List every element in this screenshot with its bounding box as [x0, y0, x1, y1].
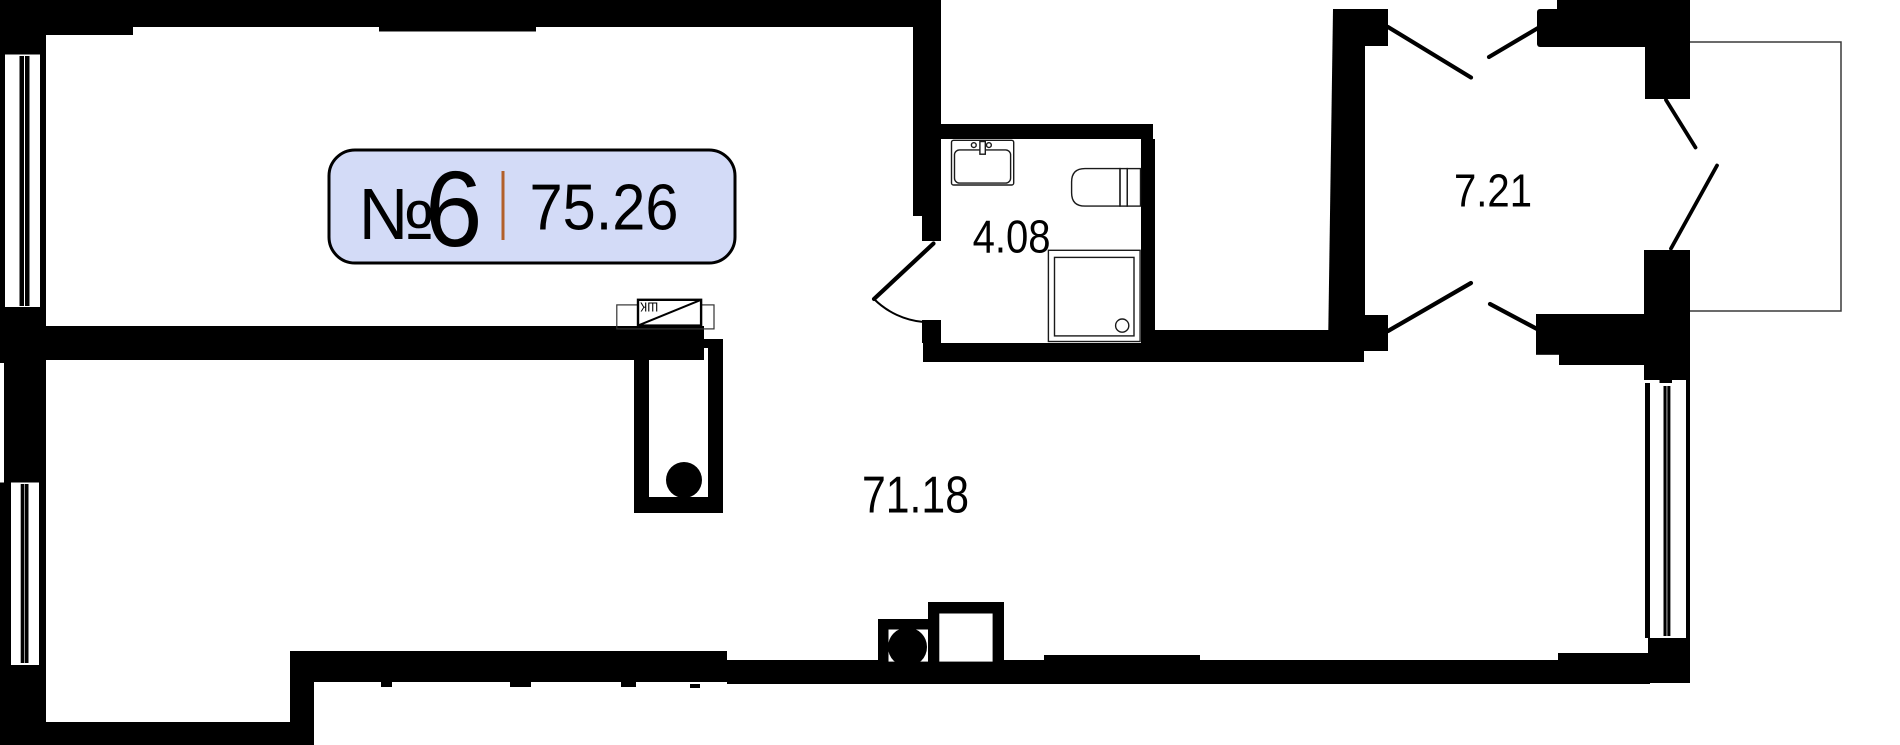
svg-text:№: №: [358, 174, 435, 255]
svg-text:6: 6: [425, 149, 483, 269]
svg-text:75.26: 75.26: [530, 172, 679, 244]
svg-text:71.18: 71.18: [862, 466, 969, 524]
svg-text:7.21: 7.21: [1454, 165, 1532, 217]
svg-text:ШК: ШК: [640, 300, 658, 315]
svg-text:4.08: 4.08: [973, 210, 1051, 262]
